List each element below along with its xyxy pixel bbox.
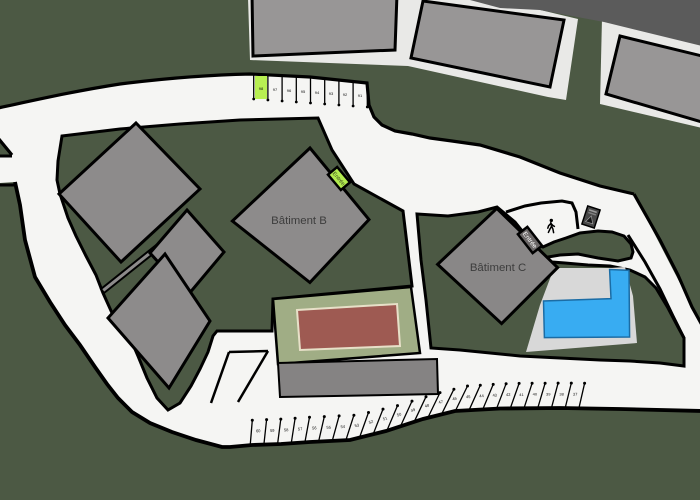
- svg-text:95: 95: [301, 89, 306, 94]
- svg-text:97: 97: [273, 87, 278, 92]
- svg-text:38: 38: [559, 392, 564, 397]
- svg-text:41: 41: [519, 392, 524, 397]
- svg-text:Bâtiment C: Bâtiment C: [470, 262, 526, 274]
- svg-text:Bâtiment B: Bâtiment B: [271, 215, 327, 227]
- svg-text:94: 94: [315, 90, 320, 95]
- svg-text:98: 98: [259, 86, 264, 91]
- svg-text:40: 40: [533, 392, 538, 397]
- svg-text:39: 39: [546, 392, 551, 397]
- svg-text:93: 93: [329, 91, 334, 96]
- svg-text:91: 91: [358, 93, 363, 98]
- svg-text:92: 92: [343, 92, 348, 97]
- svg-text:96: 96: [287, 88, 292, 93]
